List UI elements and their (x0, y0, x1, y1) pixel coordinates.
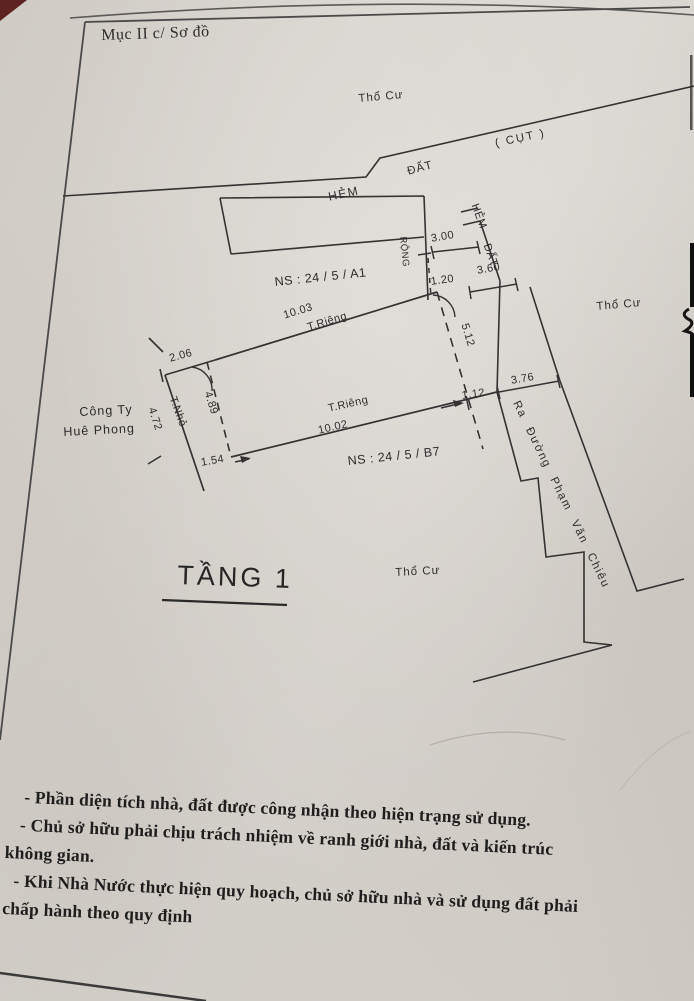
area-label-tho-cu-bottom: Thổ Cư (395, 565, 441, 579)
floor-title: TẦNG 1 (177, 560, 294, 595)
road-east-edge (560, 381, 684, 591)
arrowhead-1-54 (240, 456, 251, 463)
dashed-right-edge-5-12 (437, 292, 483, 449)
box-border-left (0, 22, 85, 740)
dim-arrow-1-54 (148, 456, 249, 464)
page-edge-mark (690, 334, 694, 397)
page-corner-background (0, 0, 27, 21)
paper-crease (620, 732, 690, 790)
road-bottom-edge (473, 645, 612, 682)
alley-band (220, 196, 428, 300)
page-edge-mark (690, 243, 694, 307)
dim-line-3-00 (418, 241, 480, 259)
notes-block: - Phần diện tích nhà, đất được công nhận… (2, 782, 668, 952)
page-edge-mark (690, 55, 693, 130)
page-edge-squiggle-mark (684, 309, 693, 335)
box-border-top (85, 7, 690, 22)
floor-title-underline (162, 600, 287, 605)
section-header: Mục II c/ Sơ đồ (101, 23, 210, 45)
scanned-document-page: Mục II c/ Sơ đồ Thổ Cư ( CỤT ) ĐẤT HẺM H… (0, 0, 694, 1001)
next-section-border (0, 973, 206, 1001)
door-arc-left (192, 367, 212, 391)
neighbor-label-cong-ty: Công Ty (79, 402, 133, 419)
page-top-edge (70, 4, 694, 18)
dim-line-3-60 (469, 278, 518, 299)
road-west-edge (497, 392, 612, 645)
paper-crease (430, 732, 565, 745)
